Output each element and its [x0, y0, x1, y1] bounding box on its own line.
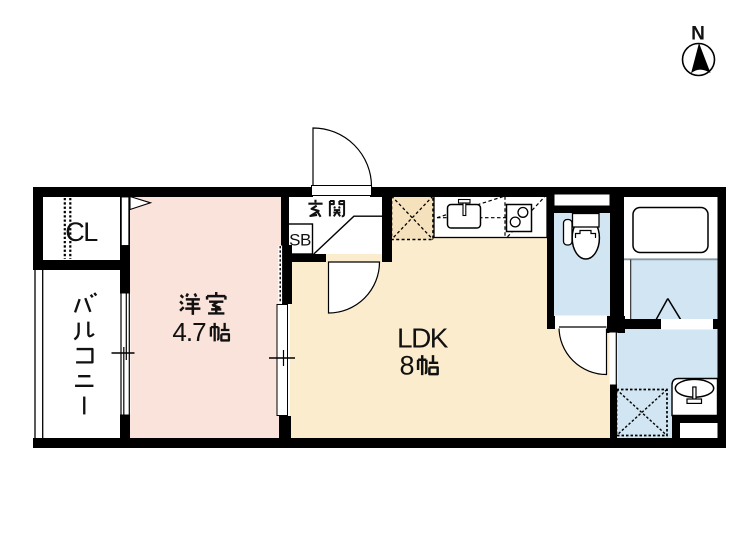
svg-text:N: N	[691, 24, 705, 45]
svg-text:LDK: LDK	[397, 323, 449, 354]
svg-text:CL: CL	[65, 217, 98, 247]
svg-text:8: 8	[399, 351, 414, 381]
svg-text:4.7: 4.7	[172, 317, 206, 347]
svg-text:SB: SB	[289, 231, 311, 250]
